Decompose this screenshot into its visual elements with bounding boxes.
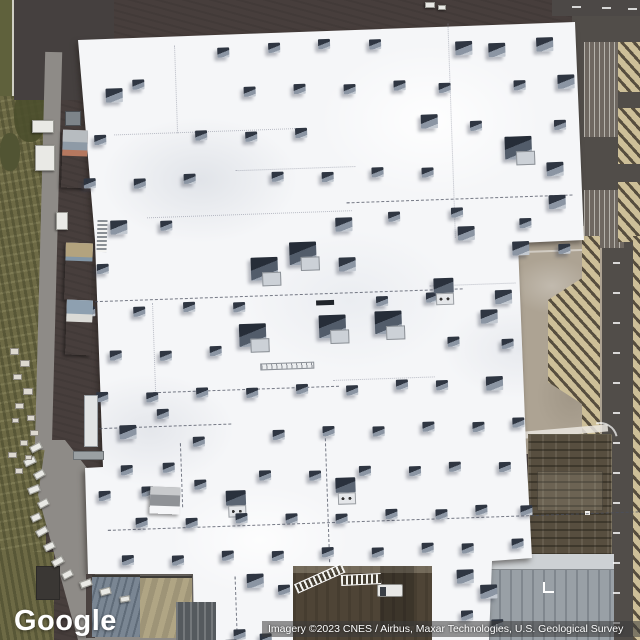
hvac-unit [335, 217, 352, 232]
hvac-unit [369, 39, 381, 49]
roof-walkway [260, 362, 314, 371]
hvac-unit [184, 174, 196, 184]
hvac-unit [470, 121, 482, 131]
lane-dash [613, 322, 620, 324]
pallet-stack [8, 452, 17, 458]
hvac-unit [480, 584, 497, 599]
lane-dash [572, 6, 581, 8]
hvac-unit [546, 162, 563, 177]
pallet-stack [25, 455, 32, 460]
hvac-unit [133, 306, 145, 316]
lane-dash [602, 7, 611, 9]
roof-seam [347, 194, 573, 203]
parked-trailer [56, 212, 68, 230]
hvac-unit [335, 514, 347, 524]
hvac-unit [436, 380, 448, 390]
roof-seam [147, 210, 352, 218]
hvac-unit [160, 351, 172, 361]
attribution-text: Imagery ©2023 CNES / Airbus, Maxar Techn… [268, 623, 623, 635]
hvac-unit [504, 136, 532, 160]
parked-trailer [438, 5, 446, 10]
attribution-bar: Imagery ©2023 CNES / Airbus, Maxar Techn… [262, 621, 640, 637]
hvac-unit [272, 551, 284, 561]
lane-dash [613, 262, 620, 264]
hvac-unit [97, 264, 109, 274]
hvac-unit [245, 131, 257, 141]
hvac-unit [295, 128, 307, 138]
hvac-unit [322, 426, 334, 436]
hvac-unit [435, 509, 447, 519]
catwalk [341, 573, 382, 586]
hvac-unit [296, 384, 308, 394]
hvac-unit [438, 83, 450, 93]
hvac-unit [421, 167, 433, 177]
parked-trailer [35, 145, 55, 171]
hvac-unit [289, 241, 317, 265]
pallet-stack [10, 348, 19, 355]
hvac-unit [226, 490, 247, 506]
roof-seam [235, 576, 238, 636]
hvac-unit [309, 470, 321, 480]
hvac-unit [359, 466, 371, 476]
hvac-unit [558, 244, 570, 254]
hvac-unit [501, 339, 513, 349]
hvac-unit [554, 120, 566, 130]
hvac-unit [250, 257, 278, 281]
shed-building [150, 486, 181, 514]
hvac-unit [374, 311, 402, 335]
hvac-unit [548, 195, 565, 210]
hvac-unit [520, 505, 532, 515]
hvac-unit [172, 555, 184, 565]
dock-canopy [73, 451, 104, 460]
hvac-unit [422, 543, 434, 553]
hvac-unit [458, 226, 475, 241]
hvac-unit [393, 80, 405, 90]
hvac-unit [119, 425, 136, 440]
hvac-unit [322, 547, 334, 557]
hvac-unit [99, 491, 111, 501]
hvac-unit [271, 172, 283, 182]
hvac-unit [285, 513, 297, 523]
hvac-unit [480, 309, 497, 324]
hvac-unit [372, 547, 384, 557]
hvac-unit [421, 114, 438, 129]
hvac-unit [409, 466, 421, 476]
hvac-unit [455, 41, 472, 56]
hvac-unit [472, 422, 484, 432]
hvac-unit [475, 505, 487, 515]
hvac-unit [462, 543, 474, 553]
pallet-stack [20, 360, 30, 367]
hvac-unit [195, 130, 207, 140]
shed-building [64, 243, 93, 301]
lane-dash [613, 562, 620, 564]
hvac-unit [293, 84, 305, 94]
hvac-unit [105, 88, 122, 103]
shed-roof-segment [63, 130, 88, 142]
hvac-unit [247, 573, 264, 588]
hvac-unit [376, 296, 388, 306]
hvac-unit [371, 167, 383, 177]
hvac-unit [322, 172, 334, 182]
lane-dash [613, 442, 620, 444]
hvac-unit [194, 479, 206, 489]
lane-dash [613, 472, 620, 474]
hvac-unit [135, 518, 147, 528]
hvac-unit [239, 323, 267, 347]
pallet-stack [15, 468, 23, 474]
pallet-stack [30, 430, 39, 436]
hvac-unit [396, 379, 408, 389]
hvac-unit [273, 430, 285, 440]
hvac-unit [499, 462, 511, 472]
hvac-unit [372, 426, 384, 436]
pallet-stack [20, 440, 28, 446]
lane-dash [613, 502, 620, 504]
roof-pipe [316, 300, 334, 306]
hvac-unit [511, 538, 523, 548]
roof-seam [235, 166, 355, 171]
hvac-unit [433, 278, 454, 294]
lane-dash [613, 412, 620, 414]
hvac-unit [536, 37, 553, 52]
hvac-unit [488, 43, 505, 58]
lane-dash [613, 292, 620, 294]
hvac-unit [557, 74, 574, 89]
pallet-stack [23, 388, 33, 395]
hvac-unit [246, 388, 258, 398]
truck [377, 584, 403, 597]
hvac-unit [335, 477, 356, 493]
hvac-unit [318, 39, 330, 49]
hvac-unit [217, 47, 229, 57]
pallet-stack [13, 374, 22, 380]
hvac-unit [163, 463, 175, 473]
hvac-unit [132, 79, 144, 89]
hvac-unit [451, 207, 463, 217]
pallet-stack [27, 415, 35, 421]
hvac-unit [346, 385, 358, 395]
hvac-unit [447, 337, 459, 347]
hvac-unit [235, 513, 247, 523]
hvac-unit [519, 218, 531, 228]
pallet-stack [12, 418, 19, 423]
hvac-unit [512, 241, 529, 256]
lane-dash [613, 532, 620, 534]
hvac-unit [122, 555, 134, 565]
google-logo[interactable]: Google [14, 605, 117, 638]
hvac-unit [456, 569, 473, 584]
hvac-unit [121, 465, 133, 475]
parked-trailer [425, 2, 435, 8]
shed-roof-segment [66, 243, 93, 258]
lane-dash [613, 352, 620, 354]
pallet-stack [15, 403, 24, 409]
shed-building [65, 300, 93, 356]
roof-seam [174, 45, 178, 133]
hvac-unit [513, 80, 525, 90]
hvac-unit [186, 518, 198, 528]
roof-seam [447, 24, 455, 238]
hvac-unit [495, 290, 512, 305]
hvac-unit [512, 417, 524, 427]
roof-seam [333, 376, 435, 381]
hvac-unit [343, 84, 355, 94]
hvac-unit [388, 212, 400, 222]
hvac-unit [183, 302, 195, 312]
hvac-unit [422, 421, 434, 431]
roof-seam [324, 428, 330, 562]
shed-roof-segment [66, 300, 92, 315]
roof-seam [152, 303, 156, 397]
hvac-unit [222, 551, 234, 561]
hvac-unit [278, 585, 290, 595]
hvac-unit [160, 220, 172, 230]
hvac-unit [385, 509, 397, 519]
shed-roof-segment [150, 486, 180, 495]
roof-edge-stairs [96, 220, 107, 252]
hvac-unit [461, 610, 473, 620]
lane-dash [613, 382, 620, 384]
hvac-unit [134, 178, 146, 188]
lane-dash [628, 8, 637, 10]
hvac-unit [110, 350, 122, 360]
hvac-unit [268, 43, 280, 53]
roof-seam [180, 443, 183, 507]
roof-detail-layer [0, 0, 640, 640]
roof-seam [95, 288, 463, 302]
hvac-unit [233, 302, 245, 312]
hvac-unit [94, 135, 106, 145]
hvac-unit [157, 409, 169, 419]
shed-building [61, 130, 88, 189]
hvac-unit [210, 346, 222, 356]
hvac-unit [193, 436, 205, 446]
hvac-unit [486, 376, 503, 391]
hvac-unit [319, 314, 347, 338]
parked-trailer [84, 395, 98, 447]
lane-dash [613, 592, 620, 594]
satellite-map-canvas[interactable]: Google Imagery ©2023 CNES / Airbus, Maxa… [0, 0, 640, 640]
utility-box [65, 111, 81, 126]
hvac-unit [244, 86, 256, 96]
hvac-unit [339, 257, 356, 272]
hvac-unit [196, 387, 208, 397]
hvac-unit [110, 220, 127, 235]
parked-trailer [32, 120, 54, 133]
hvac-unit [259, 470, 271, 480]
loading-dock-panel [176, 602, 216, 640]
hvac-unit [233, 629, 245, 639]
hvac-unit [449, 462, 461, 472]
hvac-unit [146, 392, 158, 402]
